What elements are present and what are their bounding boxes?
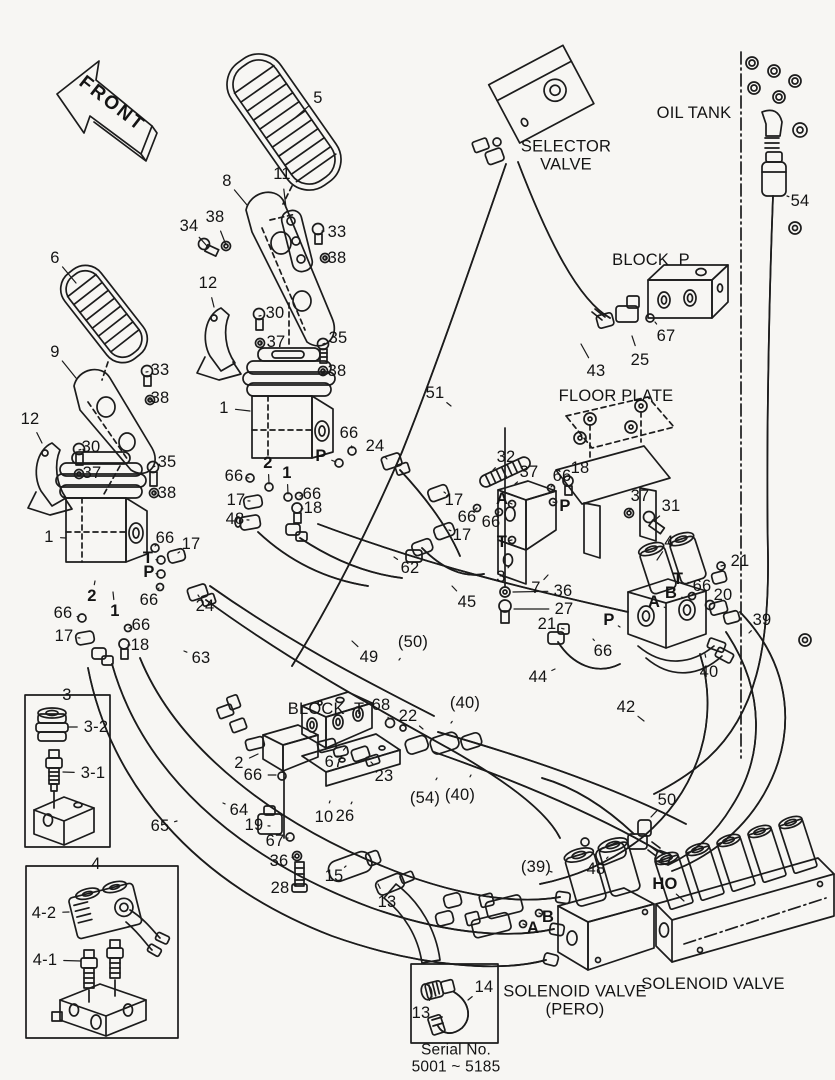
- part-callout: 2: [234, 754, 243, 772]
- part-callout: 65: [151, 817, 170, 835]
- part-callout: 49: [360, 648, 379, 666]
- part-callout: 38: [328, 362, 347, 380]
- part-callout: 18: [304, 499, 323, 517]
- component-label: OIL TANK: [657, 104, 732, 122]
- part-callout: 44: [529, 668, 548, 686]
- part-callout: 1: [219, 399, 228, 417]
- part-callout: 3-1: [81, 764, 105, 782]
- port-label: A: [496, 490, 508, 508]
- part-callout: 51: [426, 384, 445, 402]
- part-callout: 66: [244, 766, 263, 784]
- part-callout: 23: [375, 767, 394, 785]
- part-callout: 21: [538, 615, 557, 633]
- part-callout: 48: [587, 860, 606, 878]
- part-callout: 25: [631, 351, 650, 369]
- part-callout: 26: [336, 807, 355, 825]
- hose-ref-label: (54): [410, 789, 440, 807]
- part-callout: 3: [496, 568, 505, 586]
- part-callout: 30: [82, 438, 101, 456]
- part-callout: 66: [156, 529, 175, 547]
- part-callout: 30: [266, 304, 285, 322]
- part-callout: 66: [132, 616, 151, 634]
- part-callout: 4-2: [32, 904, 56, 922]
- part-callout: 48: [226, 510, 245, 528]
- port-label: P: [603, 611, 614, 629]
- part-callout: 66: [594, 642, 613, 660]
- part-callout: 66: [140, 591, 159, 609]
- component-label: SELECTOR VALVE: [521, 138, 611, 175]
- part-callout: 37: [631, 487, 650, 505]
- component-label: SOLENOID VALVE: [641, 975, 784, 993]
- part-callout: 68: [372, 696, 391, 714]
- part-callout: 13: [378, 893, 397, 911]
- part-callout: 13: [412, 1004, 431, 1022]
- part-callout: 3-2: [84, 718, 108, 736]
- part-callout: 66: [458, 508, 477, 526]
- component-label: Serial No. 5001 ~ 5185: [412, 1042, 501, 1077]
- part-callout: 33: [151, 361, 170, 379]
- part-callout: 11: [273, 165, 291, 183]
- part-callout: 17: [55, 627, 74, 645]
- part-callout: 67: [657, 327, 676, 345]
- part-callout: 54: [791, 192, 810, 210]
- part-callout: 24: [196, 597, 215, 615]
- part-callout: 27: [555, 600, 574, 618]
- part-callout: 15: [325, 867, 344, 885]
- port-label: HO: [652, 875, 677, 893]
- part-callout: 38: [328, 249, 347, 267]
- port-label: T: [497, 533, 507, 551]
- part-callout: 67: [266, 832, 285, 850]
- part-callout: 1: [44, 528, 53, 546]
- port-label: P: [143, 563, 154, 581]
- part-callout: 38: [158, 484, 177, 502]
- part-callout: 10: [315, 808, 334, 826]
- part-callout: 33: [328, 223, 347, 241]
- port-label: P: [559, 497, 570, 515]
- port-label: 2: [263, 454, 272, 472]
- part-callout: 21: [731, 552, 750, 570]
- part-callout: 67: [325, 753, 344, 771]
- part-callout: 12: [199, 274, 218, 292]
- part-callout: 20: [714, 586, 733, 604]
- part-callout: 66: [225, 467, 244, 485]
- part-callout: 35: [329, 329, 348, 347]
- part-callout: 62: [401, 559, 420, 577]
- part-callout: 22: [399, 707, 418, 725]
- part-callout: 4-1: [33, 951, 57, 969]
- front-label: FRONT: [75, 72, 150, 137]
- port-label: P: [315, 447, 326, 465]
- port-label: 1: [282, 464, 291, 482]
- part-callout: 18: [571, 459, 590, 477]
- part-callout: 50: [658, 791, 677, 809]
- part-callout: 66: [482, 513, 501, 531]
- part-callout: 45: [458, 593, 477, 611]
- part-callout: 24: [366, 437, 385, 455]
- part-callout: 14: [475, 978, 494, 996]
- port-label: A: [527, 919, 539, 937]
- hose-ref-label: (50): [398, 633, 428, 651]
- component-label: FLOOR PLATE: [559, 387, 674, 405]
- part-callout: 17: [227, 491, 246, 509]
- part-callout: 40: [700, 663, 719, 681]
- port-label: 2: [87, 587, 96, 605]
- part-callout: 19: [245, 816, 264, 834]
- part-callout: 34: [180, 217, 199, 235]
- part-callout: 36: [554, 582, 573, 600]
- part-callout: 4: [91, 855, 100, 873]
- part-callout: 66: [340, 424, 359, 442]
- hose-ref-label: (39): [521, 858, 551, 876]
- part-callout: 28: [271, 879, 290, 897]
- hose-ref-label: (40): [445, 786, 475, 804]
- callout-layer: OIL TANKSELECTOR VALVEBLOCK PFLOOR PLATE…: [0, 0, 835, 1080]
- part-callout: 31: [662, 497, 681, 515]
- part-callout: 38: [206, 208, 225, 226]
- component-label: BLOCK P: [612, 251, 690, 269]
- part-callout: 17: [182, 535, 201, 553]
- part-callout: 66: [553, 467, 572, 485]
- port-label: B: [542, 908, 554, 926]
- part-callout: 12: [21, 410, 40, 428]
- port-label: B: [665, 584, 677, 602]
- port-label: 1: [110, 602, 119, 620]
- part-callout: 9: [50, 343, 59, 361]
- port-label: A: [648, 593, 660, 611]
- part-callout: 35: [158, 453, 177, 471]
- component-label: BLOCK T: [288, 700, 365, 718]
- part-callout: 66: [54, 604, 73, 622]
- part-callout: 66: [693, 577, 712, 595]
- component-label: SOLENOID VALVE (PERO): [503, 983, 646, 1020]
- part-callout: 5: [313, 89, 322, 107]
- part-callout: 39: [753, 611, 772, 629]
- part-callout: 4: [664, 533, 673, 551]
- part-callout: 38: [151, 389, 170, 407]
- part-callout: 17: [445, 491, 464, 509]
- part-callout: 37: [267, 333, 286, 351]
- part-callout: 3: [62, 686, 71, 704]
- part-callout: 36: [270, 852, 289, 870]
- part-callout: 32: [497, 448, 516, 466]
- part-callout: 37: [520, 463, 539, 481]
- part-callout: 18: [131, 636, 150, 654]
- part-callout: 37: [83, 464, 102, 482]
- part-callout: 42: [617, 698, 636, 716]
- part-callout: 43: [587, 362, 606, 380]
- parts-diagram: OIL TANKSELECTOR VALVEBLOCK PFLOOR PLATE…: [0, 0, 835, 1080]
- part-callout: 6: [50, 249, 59, 267]
- part-callout: 7: [531, 579, 540, 597]
- hose-ref-label: (40): [450, 694, 480, 712]
- part-callout: 63: [192, 649, 211, 667]
- part-callout: 17: [453, 526, 472, 544]
- part-callout: 8: [222, 172, 231, 190]
